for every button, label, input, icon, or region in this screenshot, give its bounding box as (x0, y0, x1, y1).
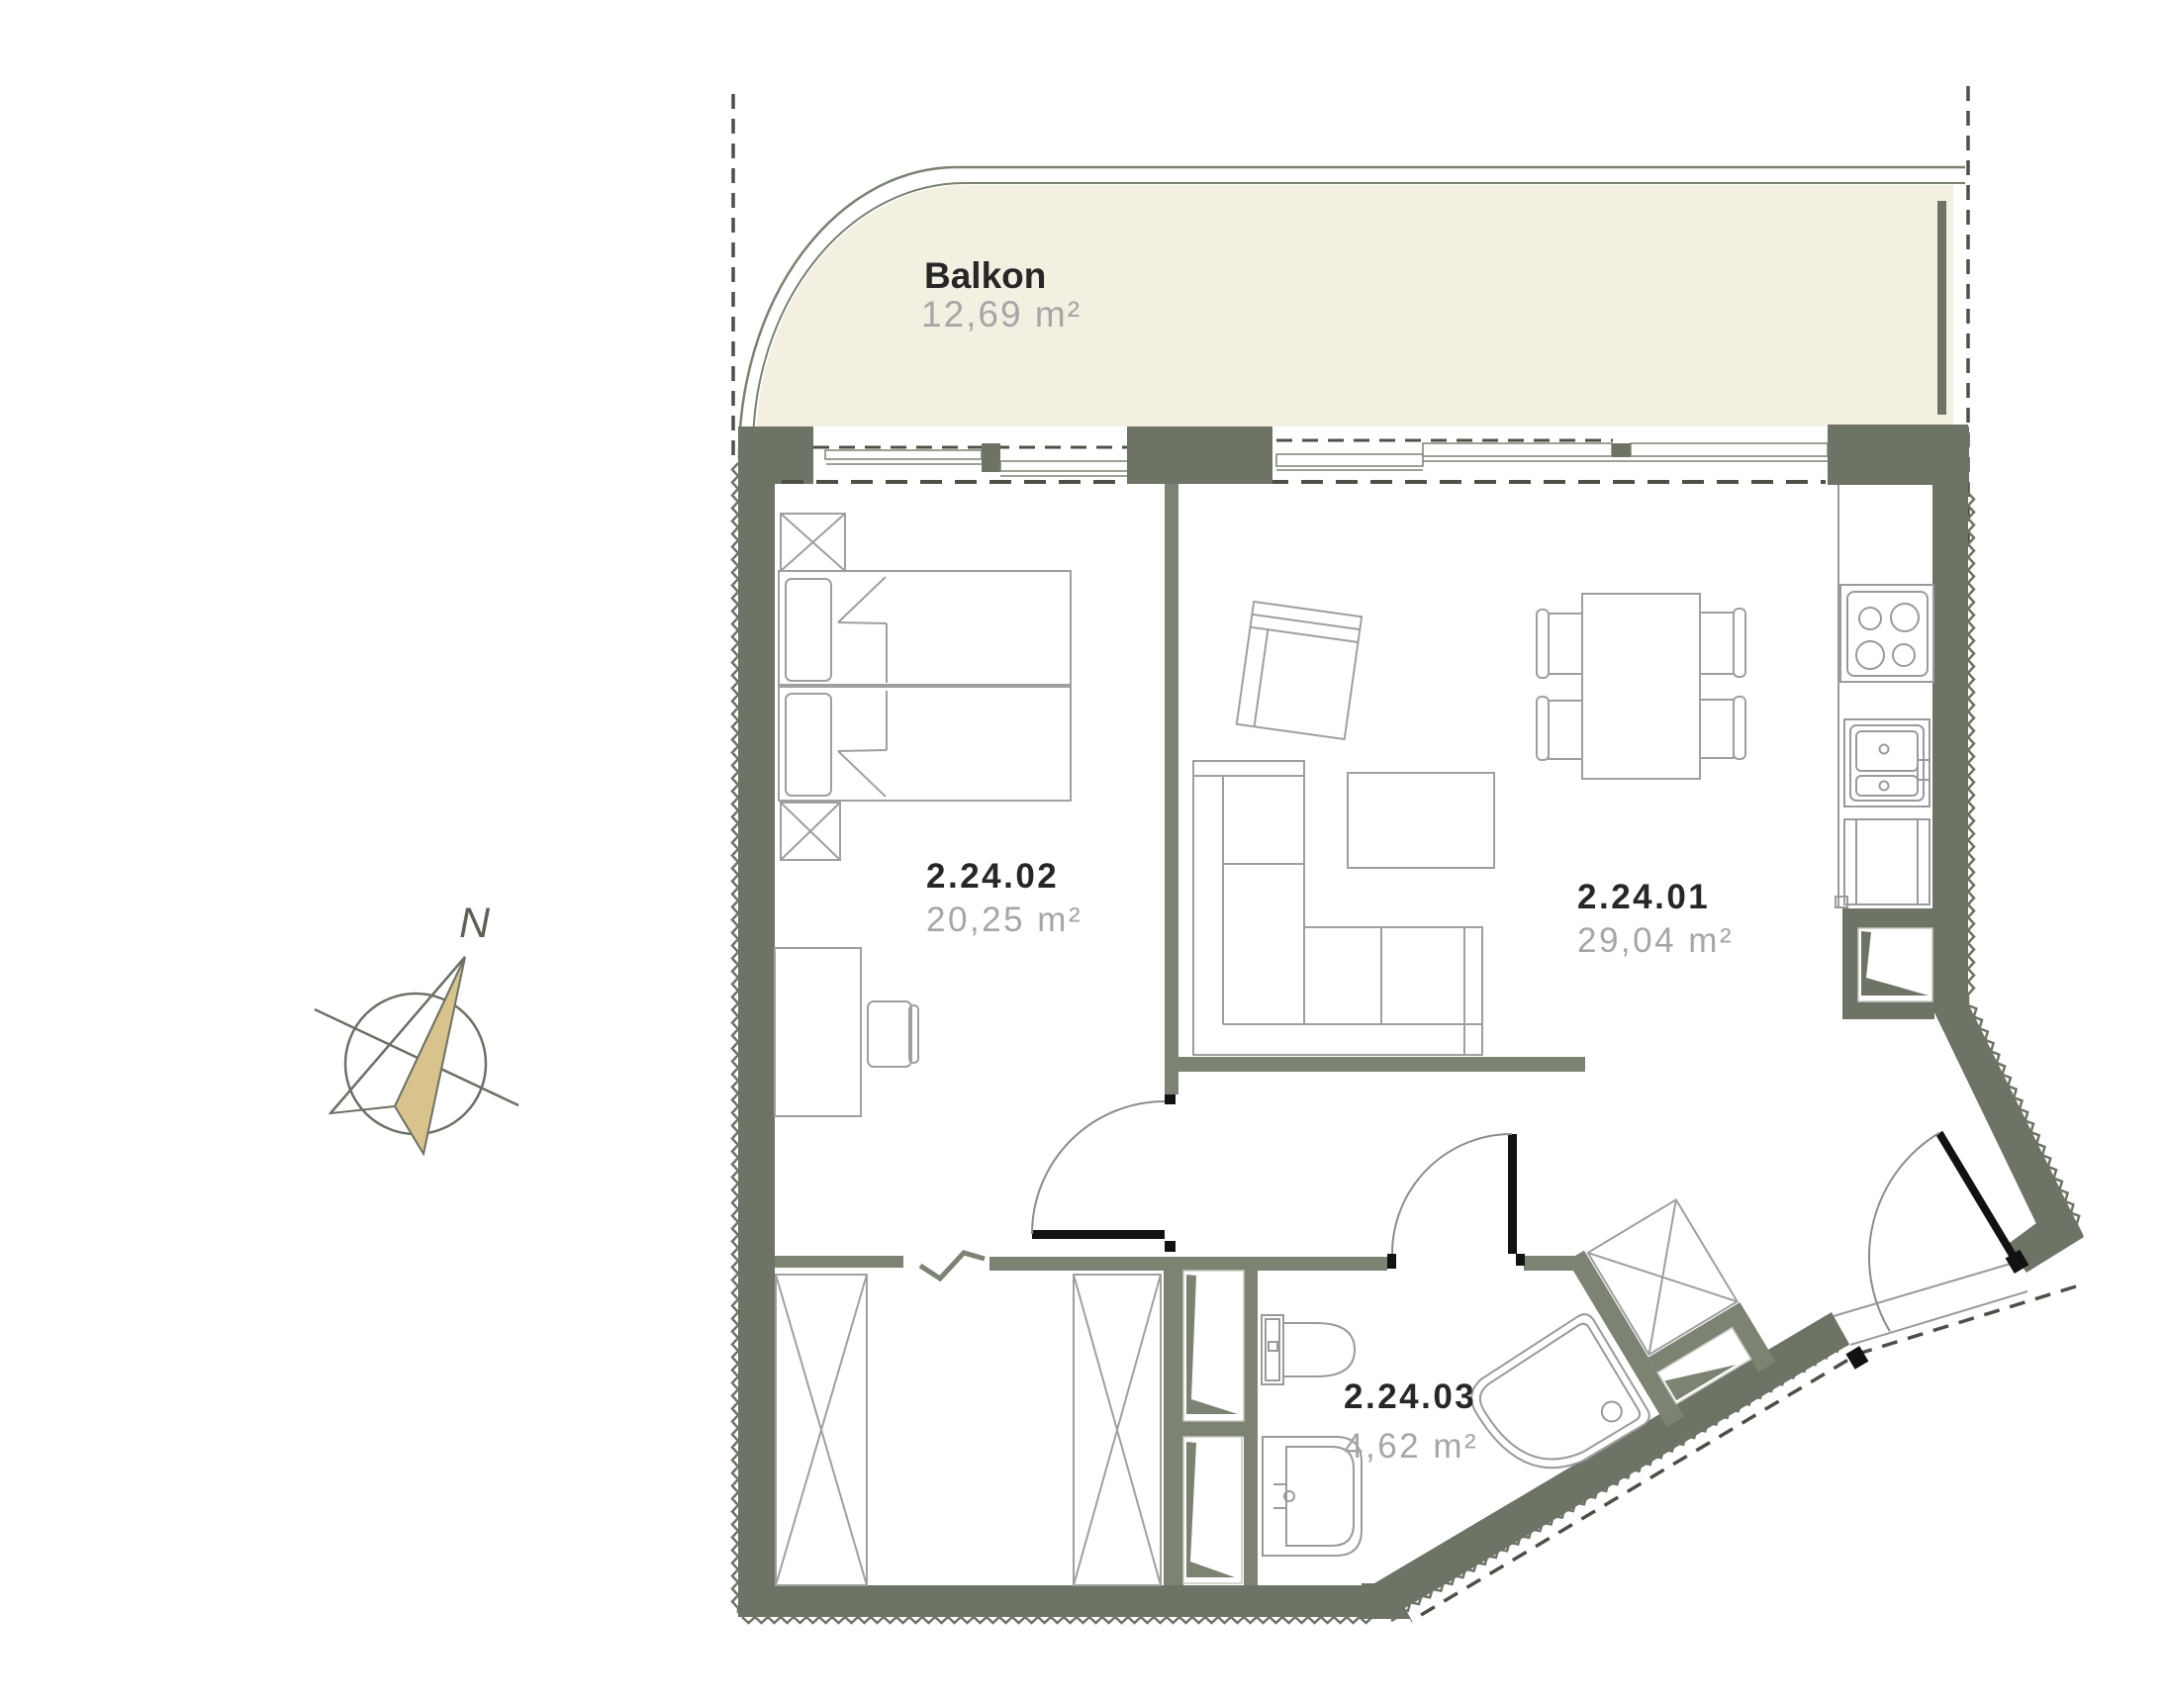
svg-text:4,62 m²: 4,62 m² (1344, 1427, 1478, 1466)
svg-text:Balkon: Balkon (924, 255, 1046, 296)
svg-text:N: N (459, 900, 491, 947)
svg-text:12,69 m²: 12,69 m² (921, 294, 1082, 334)
svg-text:29,04 m²: 29,04 m² (1577, 921, 1734, 960)
svg-text:2.24.02: 2.24.02 (926, 857, 1059, 896)
svg-text:2.24.01: 2.24.01 (1577, 878, 1710, 916)
svg-text:20,25 m²: 20,25 m² (926, 901, 1082, 939)
svg-text:2.24.03: 2.24.03 (1344, 1377, 1476, 1416)
